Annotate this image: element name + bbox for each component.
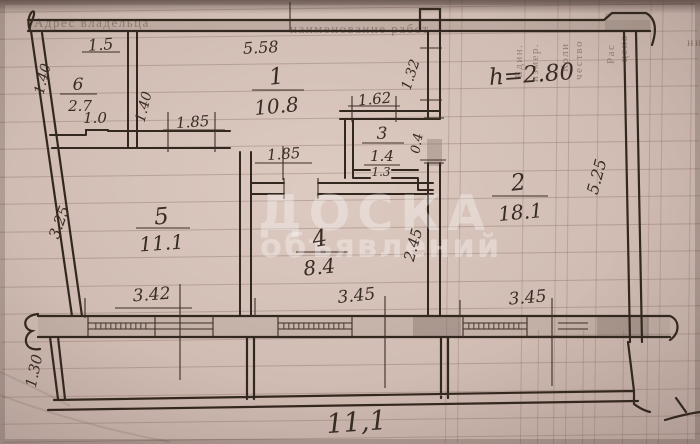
dim-bottom-left: 3.42 [132, 284, 171, 307]
room-3-number: 3 [377, 124, 388, 144]
printed-form-col-price-1: Рас [605, 44, 617, 64]
watermark-line2: объявлений [260, 227, 501, 265]
room-1-area: 10.8 [253, 92, 299, 120]
dim-closet-inner: 1.0 [83, 109, 107, 127]
room-2-area: 18.1 [497, 198, 543, 226]
room-3-sub-area: 1.3 [371, 165, 390, 179]
room-5-number: 5 [153, 203, 170, 230]
dim-hall-width: 1.85 [266, 144, 301, 164]
dim-loggia-length: 11,1 [325, 405, 387, 440]
printed-form-col-qty-2: чество [573, 40, 585, 80]
dim-wc-top: 1.62 [357, 89, 392, 110]
dim-bottom-right: 3.45 [508, 286, 547, 309]
room-1-number: 1 [268, 63, 285, 90]
floor-plan-sketch: Адрес владельца наименование работ Един.… [0, 0, 700, 444]
dim-top-left: 1.5 [87, 34, 114, 55]
floor-plan-photo: Адрес владельца наименование работ Един.… [0, 0, 700, 444]
room-5-area: 11.1 [138, 229, 184, 256]
dim-top-center: 5.58 [242, 37, 279, 58]
dim-bottom-mid: 3.45 [337, 284, 377, 308]
room-2-number: 2 [509, 169, 527, 196]
room-6-number: 6 [73, 75, 84, 95]
room-4-area: 8.4 [302, 253, 336, 280]
dim-closet-width: 1.85 [175, 112, 210, 132]
room-3-area: 1.4 [370, 147, 394, 165]
